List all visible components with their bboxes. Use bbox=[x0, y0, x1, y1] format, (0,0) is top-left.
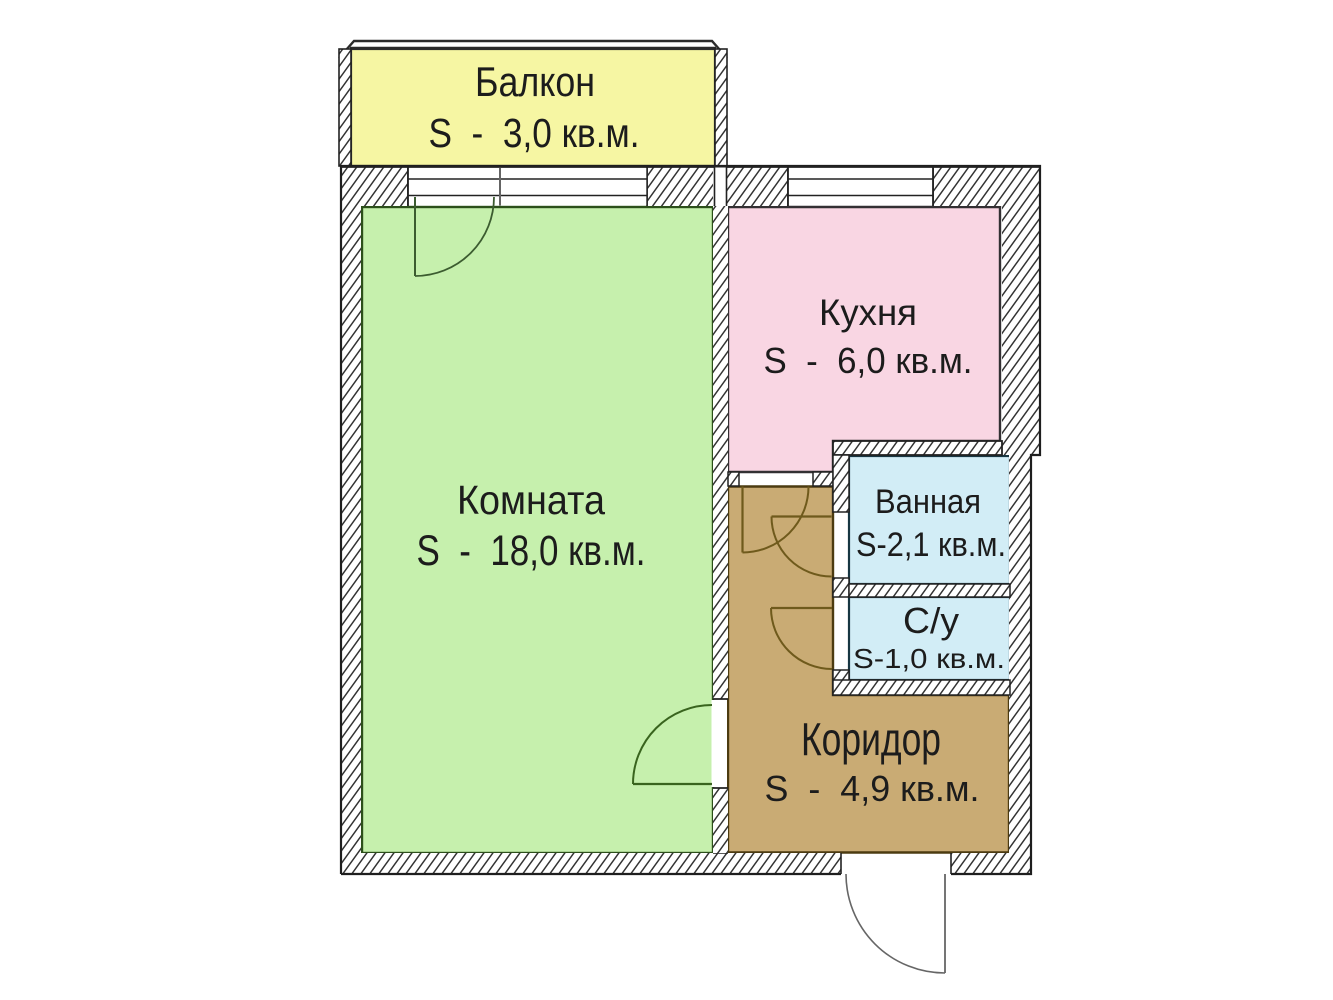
svg-text:Балкон: Балкон bbox=[475, 58, 595, 105]
svg-text:S - 6,0 кв.м.: S - 6,0 кв.м. bbox=[764, 340, 973, 381]
svg-text:S - 18,0 кв.м.: S - 18,0 кв.м. bbox=[417, 527, 646, 575]
svg-text:Комната: Комната bbox=[457, 477, 605, 523]
svg-text:S - 4,9 кв.м.: S - 4,9 кв.м. bbox=[765, 768, 980, 809]
svg-text:S-1,0 кв.м.: S-1,0 кв.м. bbox=[853, 643, 1005, 674]
svg-text:Ванная: Ванная bbox=[875, 483, 981, 521]
svg-text:Коридор: Коридор bbox=[801, 713, 941, 765]
svg-text:S-2,1 кв.м.: S-2,1 кв.м. bbox=[856, 526, 1006, 564]
svg-text:S - 3,0 кв.м.: S - 3,0 кв.м. bbox=[429, 110, 640, 156]
svg-text:Кухня: Кухня bbox=[819, 292, 917, 333]
svg-text:С/у: С/у bbox=[903, 600, 959, 641]
